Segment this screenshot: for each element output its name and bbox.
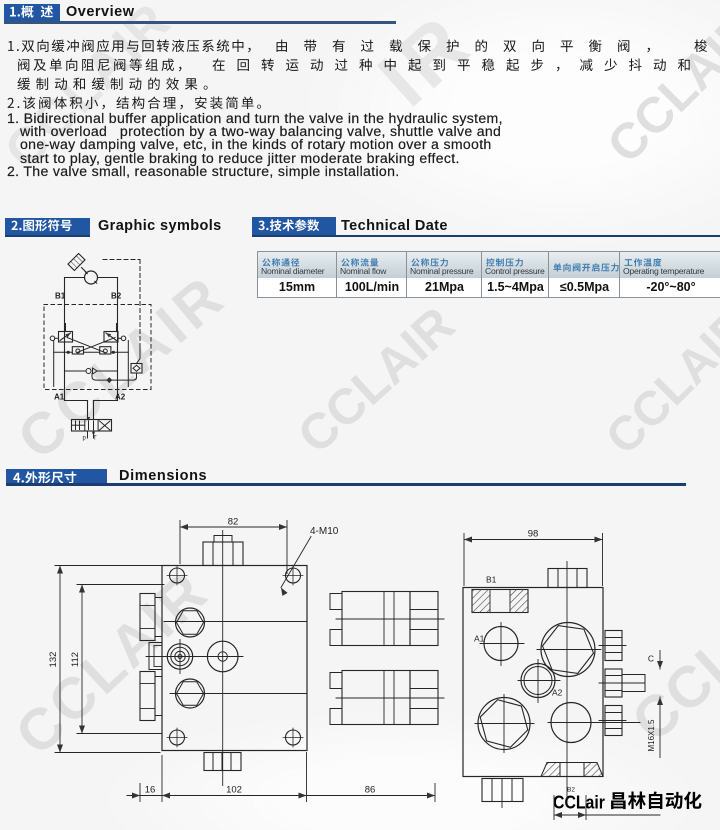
svg-text:A1: A1 bbox=[474, 634, 485, 644]
svg-text:A1: A1 bbox=[54, 393, 65, 402]
svg-text:98: 98 bbox=[528, 529, 539, 540]
svg-text:M16X1.5: M16X1.5 bbox=[647, 719, 656, 752]
svg-text:B2: B2 bbox=[567, 787, 575, 794]
svg-text:132: 132 bbox=[48, 652, 59, 668]
svg-text:112: 112 bbox=[70, 652, 81, 667]
svg-text:B1: B1 bbox=[55, 292, 66, 301]
svg-text:102: 102 bbox=[226, 785, 242, 796]
svg-text:C: C bbox=[648, 654, 654, 664]
svg-text:A2: A2 bbox=[552, 688, 563, 698]
svg-text:4-M10: 4-M10 bbox=[310, 526, 339, 537]
svg-text:86: 86 bbox=[365, 785, 376, 796]
svg-text:82: 82 bbox=[228, 517, 239, 528]
svg-text:B2: B2 bbox=[111, 292, 122, 301]
svg-text:16: 16 bbox=[145, 785, 156, 796]
svg-text:T: T bbox=[93, 436, 97, 442]
svg-text:B1: B1 bbox=[486, 575, 497, 585]
svg-text:p: p bbox=[83, 436, 87, 442]
